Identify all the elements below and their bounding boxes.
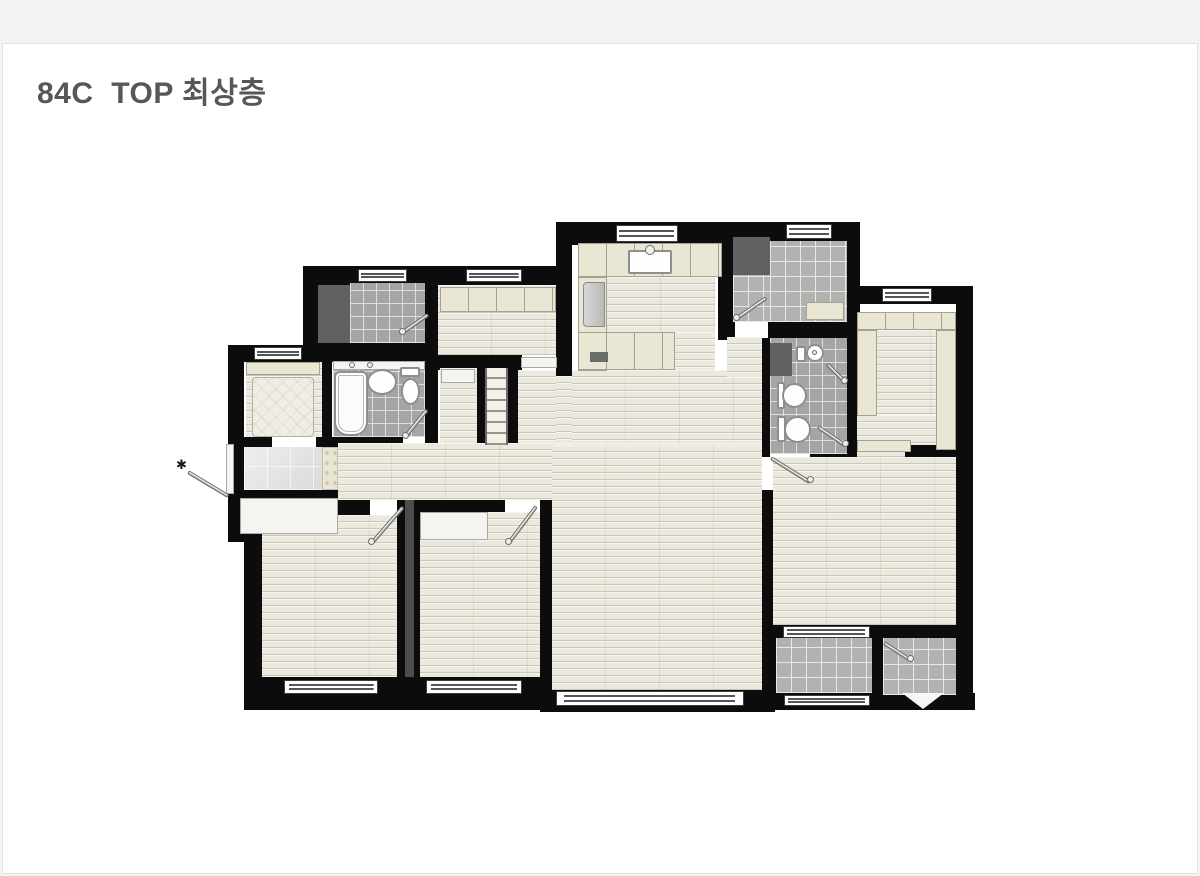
kitchen-faucet <box>645 245 655 255</box>
floor-pantry-pass <box>518 370 556 443</box>
handle-bath2 <box>842 440 849 447</box>
handle-bedroom2 <box>505 538 512 545</box>
floor-living-room <box>552 445 762 690</box>
bath1-sink <box>367 369 397 395</box>
floor-utility-tile <box>350 283 425 343</box>
window-study <box>254 347 302 360</box>
entrance-door-frame <box>226 444 234 494</box>
handle-ac <box>907 655 914 662</box>
floor-pass2 <box>556 376 572 443</box>
kitchen-counter-bottom <box>578 332 675 370</box>
window-balcony-outer <box>784 695 870 706</box>
bath1-faucet2 <box>367 362 373 368</box>
dressing-closet-bottom <box>857 440 911 452</box>
window-master-balcony <box>783 626 870 638</box>
bath2-faucet-column <box>796 346 806 362</box>
bathtub <box>334 371 368 436</box>
floor-kitchen-walk <box>607 277 715 332</box>
study-closet <box>246 362 320 375</box>
washer-unit <box>733 237 770 275</box>
wall-utility-bottom <box>303 343 445 362</box>
wall-bedroom2-living <box>540 495 552 710</box>
bath2-sink <box>782 383 807 408</box>
dressing-closet-top <box>857 312 956 330</box>
cooktop <box>590 352 608 362</box>
handle-utility <box>399 328 406 335</box>
handle-shower <box>841 377 848 384</box>
floor-plan: ✱ <box>0 0 1200 876</box>
bath1-faucet1 <box>349 362 355 368</box>
handle-master <box>807 476 814 483</box>
wall-balcony-left <box>762 625 776 710</box>
floor-kitchen-walk2 <box>675 332 715 370</box>
entrance-arrow <box>187 470 229 498</box>
window-pantry <box>466 269 522 282</box>
pantry-cabinets <box>440 287 556 312</box>
bedroom2-closet <box>420 512 488 540</box>
bath2-toilet-bowl <box>784 416 811 443</box>
dressing-closet-left <box>857 330 877 416</box>
wall-left-lower <box>244 515 262 700</box>
window-utility <box>358 269 407 282</box>
floor-entry <box>244 447 322 490</box>
pantry-door-threshold <box>521 357 557 368</box>
laundry-bench <box>806 302 844 320</box>
entrance-marker: ✱ <box>176 458 187 471</box>
handle-bath1 <box>402 432 409 439</box>
bath2-basin-drain <box>812 350 817 355</box>
wall-right <box>956 286 973 710</box>
window-laundry <box>786 224 832 239</box>
wall-stair-rail-right <box>508 368 518 445</box>
dressing-closet-right <box>936 330 956 450</box>
window-living <box>556 691 744 706</box>
utility-unit <box>318 285 350 343</box>
wall-hall-bath <box>762 338 770 457</box>
window-bedroom2 <box>426 680 522 694</box>
bath1-toilet-bowl <box>401 378 420 405</box>
window-bedroom1 <box>284 680 378 694</box>
floor-hall <box>727 337 762 377</box>
handle-bedroom1 <box>368 538 375 545</box>
entrance-porch <box>240 498 338 534</box>
wall-kitchen-left <box>556 245 572 376</box>
wall-balcony-divider <box>872 637 883 697</box>
stair-closet-shelf <box>441 369 475 383</box>
wall-laundry-bottom-left <box>727 322 735 338</box>
wall-pantry-left <box>425 283 438 445</box>
window-kitchen <box>616 225 678 242</box>
floor-balcony <box>776 638 872 693</box>
floor-master-bedroom <box>773 457 956 625</box>
handle-laundry <box>733 314 740 321</box>
entry-art-wall <box>322 447 338 490</box>
wall-living-master <box>762 490 773 637</box>
refrigerator <box>583 282 605 327</box>
floor-dining <box>572 370 762 443</box>
stairs-to-roof <box>485 368 508 445</box>
bath1-toilet-tank <box>400 367 420 377</box>
study-bed <box>252 377 314 437</box>
bath2-shaft <box>770 343 792 376</box>
window-dressing <box>882 288 932 302</box>
plumbing-shaft <box>405 500 414 677</box>
